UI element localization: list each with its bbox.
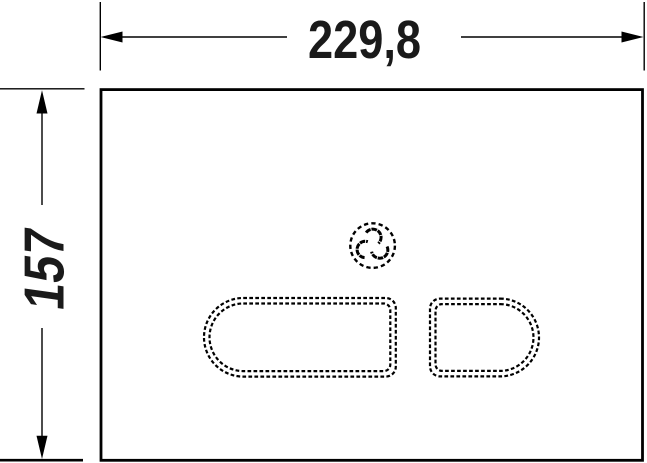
svg-text:157: 157 <box>13 224 76 314</box>
svg-text:229,8: 229,8 <box>308 10 421 69</box>
